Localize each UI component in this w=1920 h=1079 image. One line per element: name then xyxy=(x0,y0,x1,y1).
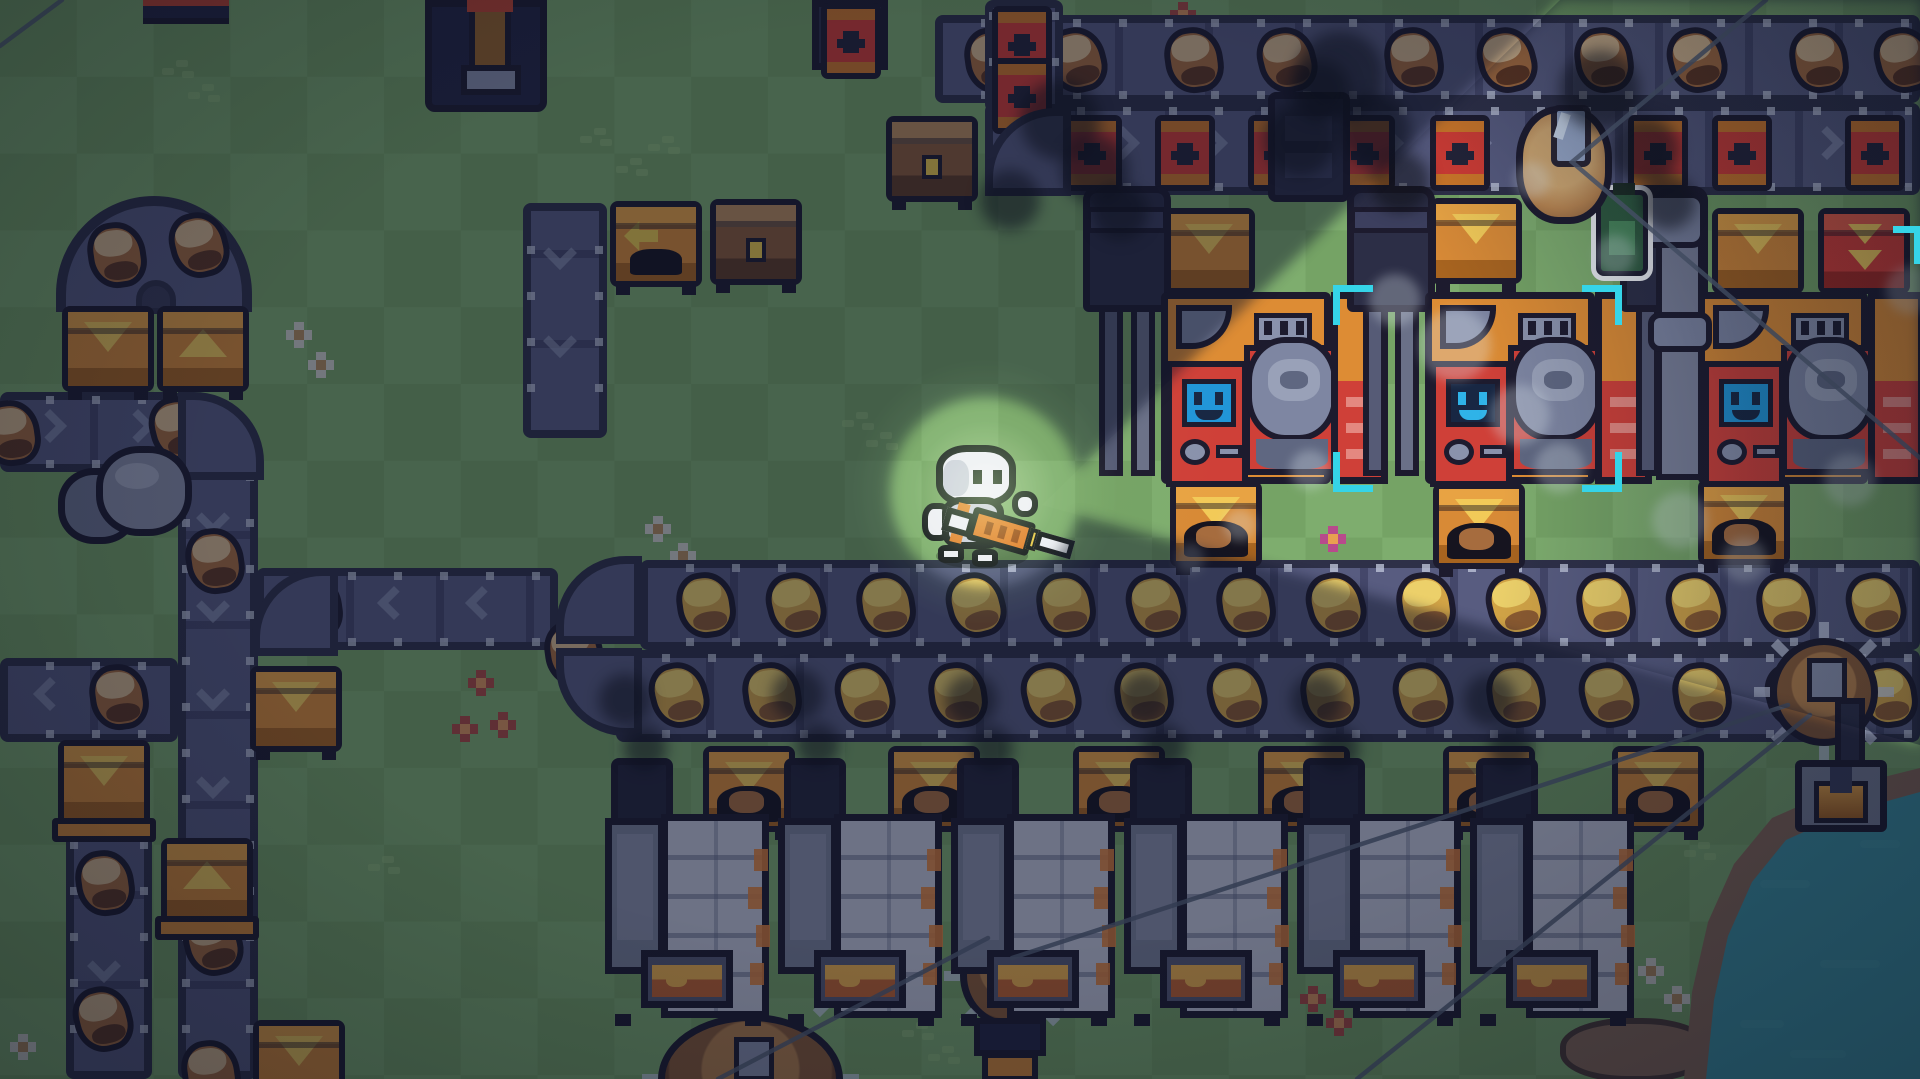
game-viewport xyxy=(0,0,1920,1079)
power-cable xyxy=(1572,0,1920,458)
power-cable xyxy=(1012,705,1788,958)
power-cable xyxy=(718,938,988,1079)
power-cables xyxy=(0,0,1920,1079)
power-cable xyxy=(0,0,62,46)
